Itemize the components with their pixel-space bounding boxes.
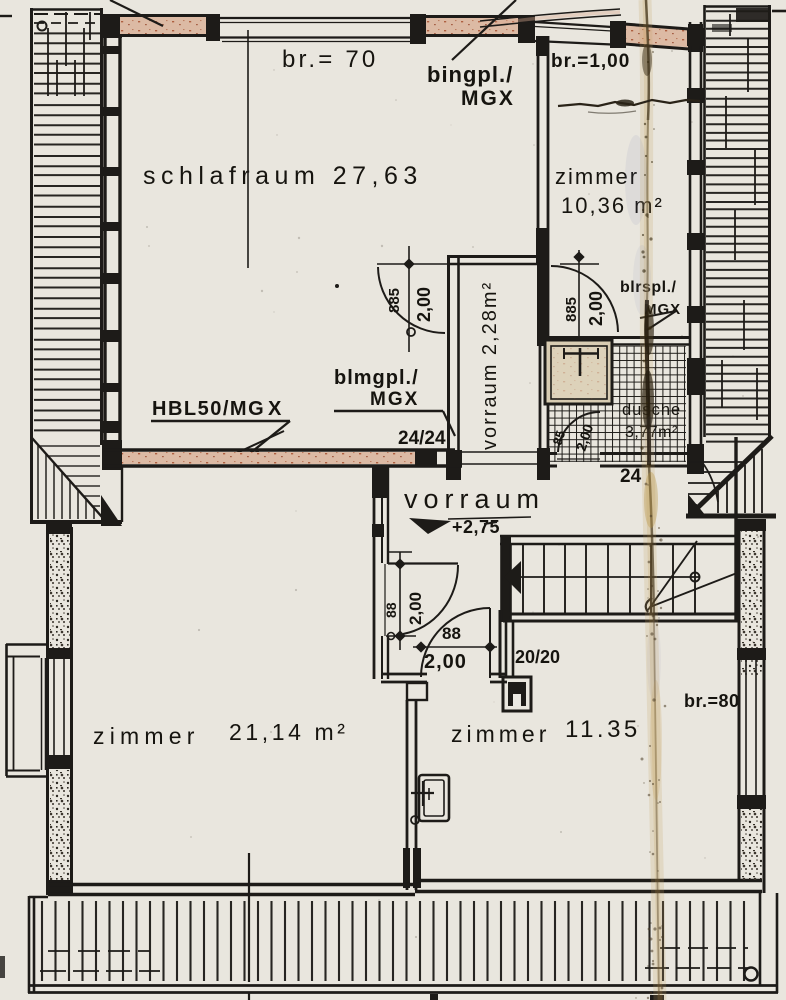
svg-text:X: X (268, 398, 282, 420)
svg-text:br.= 70: br.= 70 (282, 46, 378, 73)
svg-text:MGX: MGX (461, 87, 515, 110)
svg-text:br.=80: br.=80 (684, 691, 740, 711)
svg-text:24: 24 (620, 466, 642, 487)
svg-text:88: 88 (383, 602, 399, 618)
svg-text:blmgpl./: blmgpl./ (334, 367, 419, 389)
svg-text:+2,75: +2,75 (452, 517, 500, 537)
svg-text:885: 885 (386, 288, 403, 313)
svg-text:HBL50/MG: HBL50/MG (152, 398, 265, 420)
svg-text:MGX: MGX (370, 389, 419, 410)
svg-text:2,00: 2,00 (406, 592, 425, 625)
svg-text:24/24: 24/24 (398, 428, 446, 449)
svg-text:885: 885 (563, 297, 580, 322)
svg-text:schlafraum 27,63: schlafraum 27,63 (143, 162, 423, 190)
svg-text:88: 88 (442, 624, 461, 643)
svg-text:20/20: 20/20 (515, 647, 560, 667)
svg-text:bingpl./: bingpl./ (427, 62, 513, 87)
svg-text:2,00: 2,00 (424, 651, 467, 673)
svg-text:21,14 m²: 21,14 m² (229, 719, 349, 745)
svg-text:br.=1,00: br.=1,00 (551, 51, 630, 72)
svg-text:2,00: 2,00 (414, 287, 434, 322)
svg-text:11.35: 11.35 (565, 716, 641, 743)
svg-text:zimmer: zimmer (451, 721, 550, 747)
svg-text:2,00: 2,00 (586, 291, 606, 326)
svg-text:zimmer: zimmer (93, 723, 200, 749)
svg-text:vorraum 2,28m²: vorraum 2,28m² (479, 281, 501, 450)
svg-text:vorraum: vorraum (404, 484, 545, 514)
